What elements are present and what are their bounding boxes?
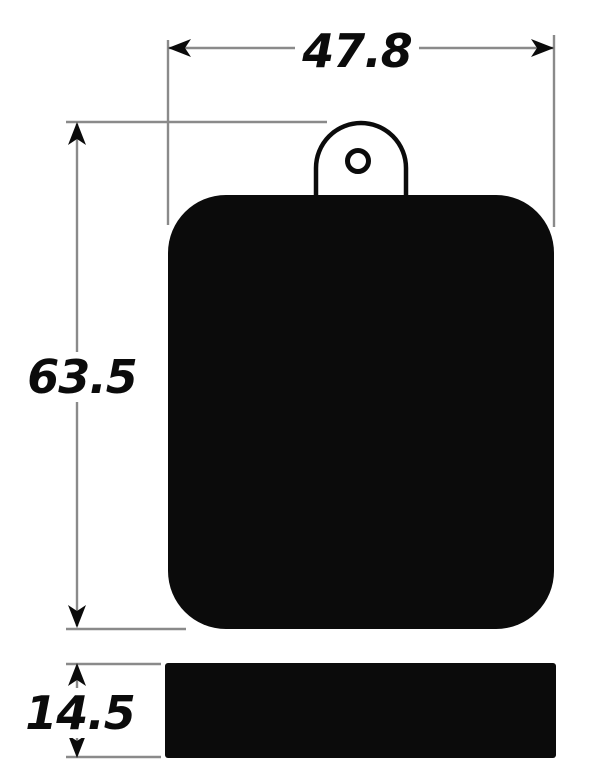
- tab-hole: [348, 151, 369, 172]
- pad-front-view: [168, 195, 554, 629]
- thickness-dimension-label: 14.5: [18, 688, 142, 738]
- pad-side-view: [165, 663, 556, 758]
- width-dimension-label: 47.8: [295, 26, 419, 76]
- height-dimension-label: 63.5: [20, 352, 144, 402]
- technical-drawing: 47.8 63.5 14.5: [0, 0, 601, 784]
